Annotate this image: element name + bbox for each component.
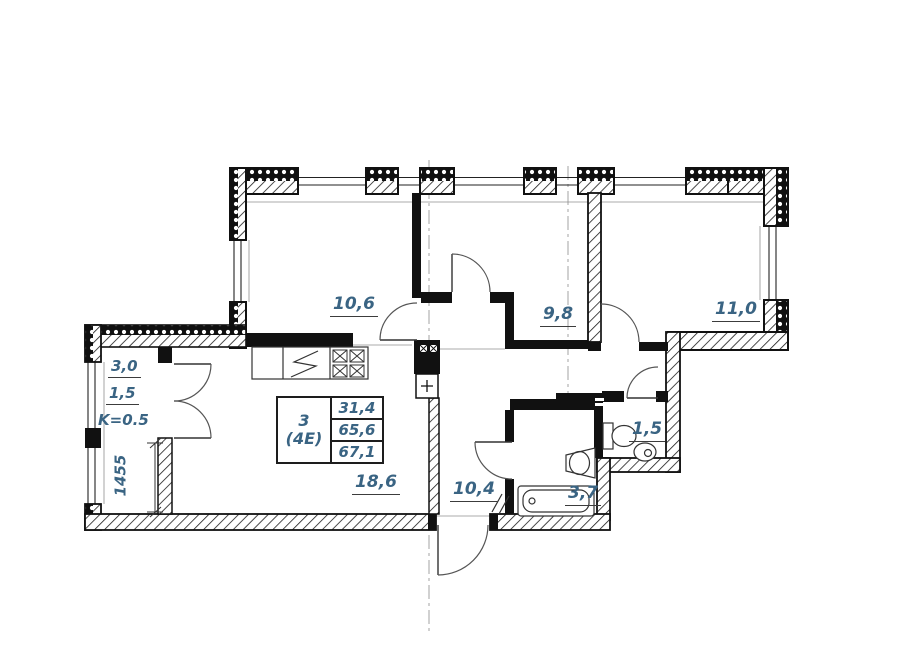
apartment-type: (4Е)	[286, 430, 323, 448]
stove-icon	[252, 347, 368, 379]
apartment-number-cell: 3 (4Е)	[278, 398, 330, 462]
bedroom2-door	[452, 254, 490, 292]
axis-lines	[429, 160, 568, 632]
apartment-room-count: 3	[298, 412, 309, 430]
sink-icon	[566, 448, 595, 478]
bedroom3-door	[601, 304, 639, 342]
total-area-value: 65,6	[332, 418, 382, 440]
balcony-coefficient-label: K=0.5	[98, 413, 149, 428]
room-label-kitchen-living: 18,6	[352, 474, 400, 491]
wc-door	[627, 367, 658, 398]
balcony-area-label: 3,0	[108, 359, 141, 374]
room-label-bedroom3: 11,0	[712, 301, 760, 318]
room-label-bedroom2: 9,8	[540, 306, 576, 323]
room-label-bathroom: 3,7	[565, 485, 601, 502]
apartment-stamp: 3 (4Е) 31,4 65,6 67,1	[276, 396, 384, 464]
floor-plan-drawing	[0, 0, 900, 667]
room-label-bedroom1: 10,6	[330, 296, 378, 313]
wc-sink-icon	[634, 443, 656, 461]
living-room-door	[380, 303, 417, 340]
living-area-value: 31,4	[332, 398, 382, 418]
room-label-wc: 1,5	[629, 421, 665, 438]
balcony-reduced-area-label: 1,5	[106, 386, 139, 401]
balcony-dimension-label: 1455	[114, 447, 129, 505]
wall-pier	[246, 168, 764, 194]
floor-plan: 10,6 9,8 11,0 18,6 10,4 3,7 1,5 3,0 1,5 …	[0, 0, 900, 667]
room-label-hall: 10,4	[450, 481, 498, 498]
kitchen-sink-icon	[291, 351, 318, 377]
apartment-areas-cell: 31,4 65,6 67,1	[330, 398, 382, 462]
bathroom-door	[475, 442, 512, 479]
vent-shaft-icon	[414, 340, 440, 398]
balcony-double-door	[174, 364, 211, 438]
total-area-with-balcony-value: 67,1	[332, 440, 382, 462]
entrance-door	[438, 494, 509, 575]
